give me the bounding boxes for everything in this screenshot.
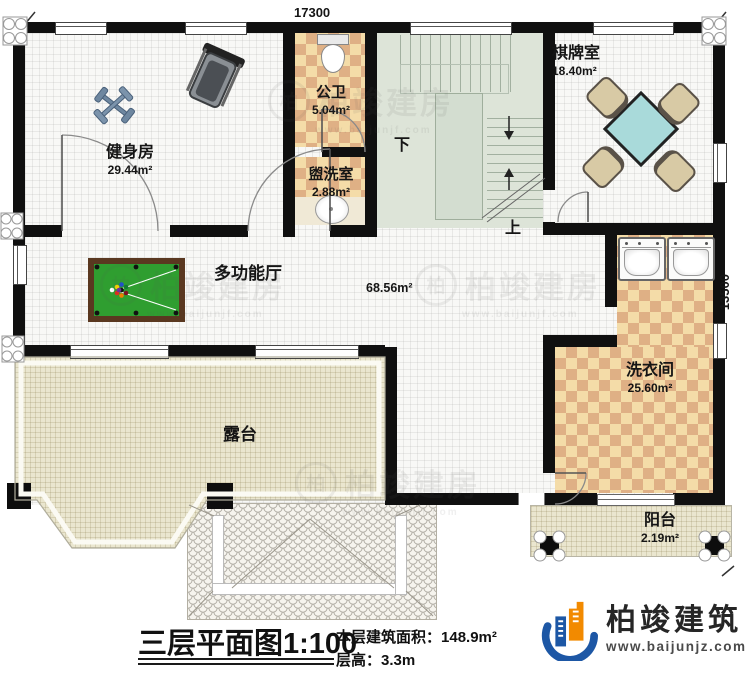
window-right-chess	[713, 143, 727, 183]
sliding-door-balcony	[597, 494, 675, 506]
room-area: 68.56m²	[366, 281, 413, 297]
wall-bottom-laundry-a	[543, 493, 597, 505]
title-underline-2	[138, 663, 334, 665]
room-label-public-bath: 公卫 5.04m²	[300, 84, 362, 118]
room-label-laundry: 洗衣间 25.60m²	[605, 361, 695, 396]
window-terrace-sliding	[255, 345, 359, 359]
wall-terrace-top-b	[167, 345, 255, 357]
window-top-gym-1	[55, 22, 107, 35]
washer-knob	[625, 242, 628, 245]
wall-laundry-jog	[543, 335, 617, 347]
room-label-chess: 棋牌室 18.40m²	[552, 44, 632, 79]
room-name: 洗衣间	[605, 361, 695, 381]
floor-area-stat: 本层建筑面积：148.9m²	[336, 626, 497, 647]
wall-terrace-top-a	[25, 345, 70, 357]
column-balcony-left	[540, 536, 559, 555]
washer-drum	[624, 249, 660, 276]
window-terrace-1	[70, 345, 169, 359]
washer-knob	[674, 242, 677, 245]
stairs-lower-flight-treads	[487, 118, 543, 218]
room-name: 健身房	[85, 143, 175, 163]
wall-gym-bottom-b	[170, 225, 248, 237]
room-label-hall: 多功能厅	[214, 263, 282, 284]
wall-laundry-left	[543, 347, 555, 473]
washer-knob	[638, 242, 641, 245]
stairs-landing	[435, 93, 483, 220]
wall-bottom-corridor	[385, 493, 518, 505]
room-name: 露台	[205, 424, 275, 445]
room-label-washroom: 盥洗室 2.88m²	[292, 166, 370, 200]
dumbbells	[88, 82, 140, 130]
window-top-gym-2	[185, 22, 247, 35]
room-area: 2.88m²	[292, 185, 370, 200]
wall-bath-left	[283, 33, 295, 237]
wall-bottom-laundry-b	[673, 493, 725, 505]
plan-title: 三层平面图1:100	[138, 620, 357, 662]
wall-laundry-upper-left	[605, 235, 617, 307]
wall-terrace-top-c	[357, 345, 385, 357]
window-right-laundry	[713, 323, 727, 359]
wall-left	[13, 22, 25, 357]
wall-gym-bottom-a	[13, 225, 62, 237]
room-area-hall: 68.56m²	[366, 281, 413, 297]
room-label-terrace: 露台	[205, 424, 275, 445]
room-name: 棋牌室	[552, 44, 632, 64]
floor-area-value: 148.9m²	[441, 629, 497, 646]
roof-ridge-bottom	[212, 583, 407, 595]
stairs-upper-outline	[400, 64, 509, 94]
room-name: 阳台	[628, 511, 692, 531]
column-balcony-right	[705, 536, 724, 555]
washing-machine-1	[618, 237, 666, 281]
brand-website: www.baijunjz.com	[606, 639, 747, 654]
window-left-hall	[13, 245, 27, 285]
washer-drum	[673, 249, 709, 276]
washroom-sink-drain	[329, 207, 333, 211]
wall-bath-right	[365, 33, 377, 237]
title-underline-1	[138, 658, 334, 660]
washing-machine-2	[667, 237, 715, 281]
room-name: 多功能厅	[214, 263, 282, 284]
dimension-right: 13500	[717, 274, 733, 310]
floor-height-label: 层高：	[336, 652, 381, 669]
window-top-stairs	[410, 22, 512, 35]
room-area: 18.40m²	[552, 64, 632, 79]
roof-ridge-right	[395, 515, 407, 595]
room-name: 公卫	[300, 84, 362, 103]
window-top-chess	[593, 22, 674, 35]
brand-logo-icon	[536, 597, 598, 661]
washer-knob	[656, 242, 659, 245]
plan-title-text: 三层平面图	[138, 628, 283, 660]
room-area: 5.04m²	[300, 103, 362, 118]
room-label-balcony: 阳台 2.19m²	[628, 511, 692, 546]
treadmill	[168, 42, 258, 112]
room-label-gym: 健身房 29.44m²	[85, 143, 175, 178]
wall-corridor-left	[385, 347, 397, 505]
wall-chess-bottom	[543, 223, 725, 235]
room-area: 2.19m²	[628, 531, 692, 546]
column-terrace-mid	[207, 483, 233, 509]
billiard-table	[88, 258, 185, 322]
floor-height-value: 3.3m	[381, 652, 415, 669]
brand-logo: 柏竣建筑 www.baijunjz.com	[536, 597, 747, 661]
floor-height-stat: 层高：3.3m	[336, 649, 415, 670]
room-area: 29.44m²	[85, 163, 175, 178]
door-opening-corridor-balcony	[518, 493, 545, 505]
brand-name: 柏竣建筑	[606, 604, 747, 637]
washer-knob	[687, 242, 690, 245]
floor-plan-page: 健身房 29.44m² 公卫 5.04m² 盥洗室 2.88m² 棋牌室 18.…	[0, 0, 750, 677]
billiard-table-detail	[94, 264, 179, 316]
washer-knob	[705, 242, 708, 245]
room-name: 盥洗室	[292, 166, 370, 185]
floor-area-label: 本层建筑面积：	[336, 629, 441, 646]
column-terrace-left	[7, 483, 31, 509]
stairs-up-label: 上	[505, 219, 521, 239]
stairs-down-label: 下	[394, 136, 410, 156]
dimension-top: 17300	[294, 5, 330, 21]
room-area: 25.60m²	[605, 381, 695, 396]
wall-bath-divider	[322, 147, 377, 157]
